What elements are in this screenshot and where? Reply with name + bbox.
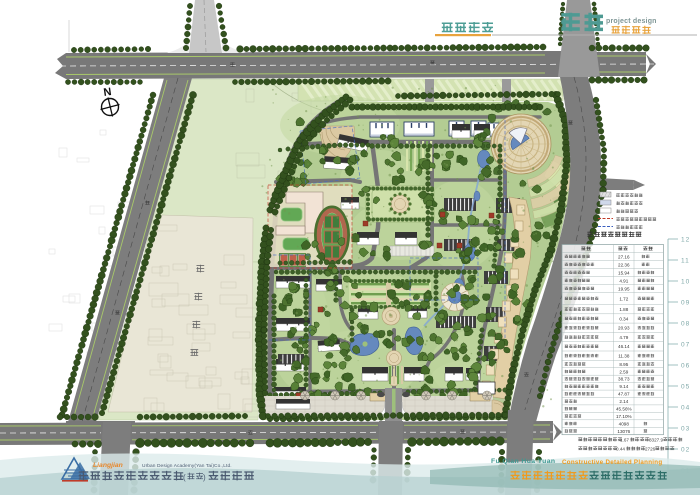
svg-text:(: ( bbox=[183, 473, 186, 482]
svg-text:22.36: 22.36 bbox=[618, 262, 630, 267]
svg-text:19.95: 19.95 bbox=[618, 286, 630, 291]
svg-text:15.94: 15.94 bbox=[618, 270, 630, 275]
svg-text:4.79: 4.79 bbox=[619, 335, 628, 340]
svg-text:9.14: 9.14 bbox=[619, 384, 628, 389]
svg-text:04: 04 bbox=[681, 405, 690, 412]
svg-text:project design: project design bbox=[606, 18, 657, 25]
svg-text:02: 02 bbox=[681, 447, 690, 454]
svg-text:2726: 2726 bbox=[645, 447, 656, 452]
svg-text:2.59: 2.59 bbox=[619, 369, 628, 374]
svg-text:06: 06 bbox=[681, 363, 690, 370]
svg-text:1.72: 1.72 bbox=[619, 296, 628, 301]
svg-text:8327.9: 8327.9 bbox=[649, 438, 663, 443]
svg-text:12: 12 bbox=[681, 237, 690, 244]
svg-text:46.14: 46.14 bbox=[618, 344, 630, 349]
svg-text:07: 07 bbox=[681, 342, 690, 349]
svg-text:11.38: 11.38 bbox=[618, 354, 630, 359]
svg-text:45.56%: 45.56% bbox=[616, 407, 632, 412]
svg-text:1.67: 1.67 bbox=[620, 438, 629, 443]
svg-text:03: 03 bbox=[681, 426, 690, 433]
svg-text:4098: 4098 bbox=[619, 421, 630, 426]
svg-text:1.88: 1.88 bbox=[619, 307, 628, 312]
svg-text:0.44: 0.44 bbox=[616, 447, 625, 452]
svg-text:10: 10 bbox=[681, 279, 690, 286]
svg-text:09: 09 bbox=[681, 300, 690, 307]
svg-text:): ) bbox=[203, 473, 206, 482]
svg-text:05: 05 bbox=[681, 384, 690, 391]
svg-text:Fu Qian Hua Yuan: Fu Qian Hua Yuan bbox=[491, 458, 555, 465]
svg-text:11: 11 bbox=[681, 258, 690, 265]
svg-text:4.91: 4.91 bbox=[619, 278, 628, 283]
svg-text:08: 08 bbox=[681, 321, 690, 328]
svg-text:Urban Design Academy(Yan Tai)C: Urban Design Academy(Yan Tai)Co.,Ltd. bbox=[142, 463, 232, 469]
svg-text:47.87: 47.87 bbox=[618, 392, 630, 397]
svg-text:17.10%: 17.10% bbox=[616, 414, 632, 419]
svg-text:Liangjian: Liangjian bbox=[93, 462, 123, 469]
svg-text:27.16: 27.16 bbox=[618, 254, 630, 259]
svg-text:Constructive Detailed Planning: Constructive Detailed Planning bbox=[562, 459, 662, 466]
svg-text:8.95: 8.95 bbox=[619, 362, 628, 367]
svg-text:20.93: 20.93 bbox=[618, 326, 630, 331]
svg-text:38.73: 38.73 bbox=[618, 377, 630, 382]
svg-text:2.14: 2.14 bbox=[619, 399, 628, 404]
svg-text:13076: 13076 bbox=[617, 429, 630, 434]
svg-text:0.34: 0.34 bbox=[619, 316, 628, 321]
